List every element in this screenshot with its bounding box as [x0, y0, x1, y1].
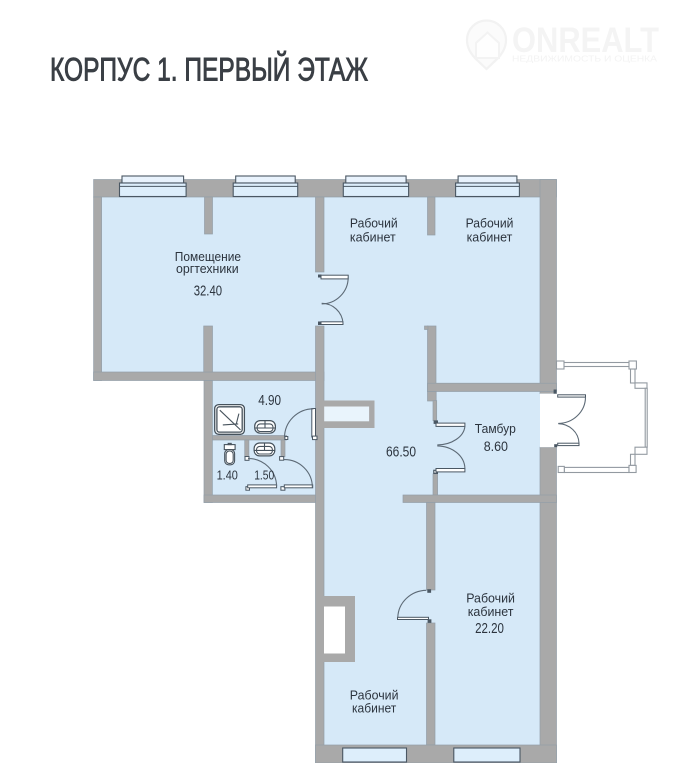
svg-text:1.40: 1.40: [217, 467, 238, 482]
svg-text:8.60: 8.60: [484, 438, 508, 454]
svg-text:Рабочий: Рабочий: [466, 217, 514, 231]
svg-text:кабинет: кабинет: [467, 231, 513, 245]
svg-text:Тамбур: Тамбур: [475, 422, 516, 436]
svg-text:22.20: 22.20: [475, 621, 504, 637]
svg-text:Рабочий: Рабочий: [466, 592, 515, 606]
svg-text:Рабочий: Рабочий: [350, 217, 398, 231]
svg-text:кабинет: кабинет: [468, 605, 514, 619]
svg-text:НЕДВИЖИМОСТЬ И ОЦЕНКА: НЕДВИЖИМОСТЬ И ОЦЕНКА: [512, 54, 657, 64]
svg-text:1.50: 1.50: [254, 468, 274, 483]
svg-text:КОРПУС 1. ПЕРВЫЙ ЭТАЖ: КОРПУС 1. ПЕРВЫЙ ЭТАЖ: [50, 52, 368, 88]
svg-text:оргтехники: оргтехники: [176, 262, 239, 276]
svg-text:кабинет: кабинет: [352, 702, 397, 716]
svg-text:кабинет: кабинет: [350, 231, 396, 245]
svg-text:32.40: 32.40: [194, 284, 222, 300]
svg-text:66.50: 66.50: [386, 444, 416, 460]
svg-text:4.90: 4.90: [258, 393, 281, 409]
svg-text:Рабочий: Рабочий: [350, 688, 399, 702]
